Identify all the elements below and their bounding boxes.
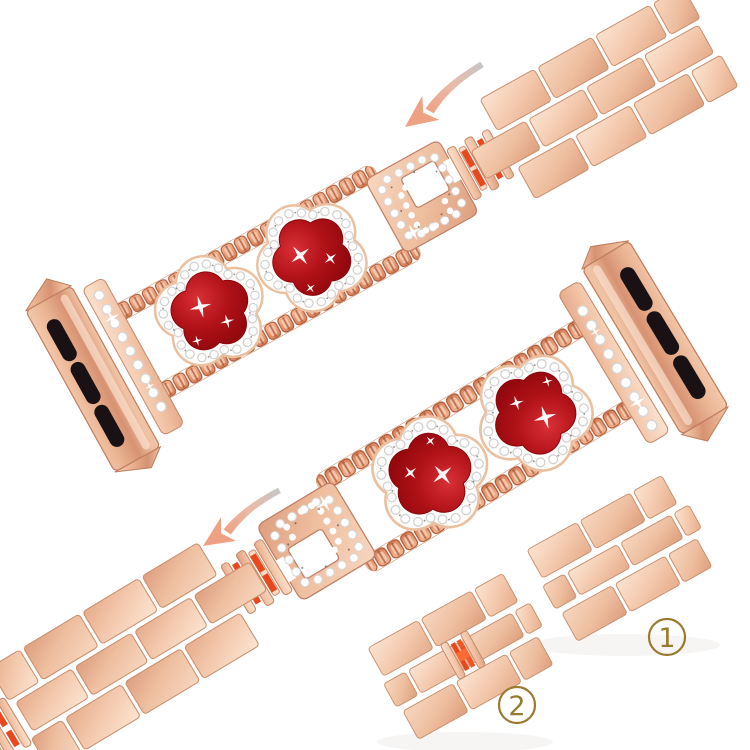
shadow — [377, 732, 553, 750]
watch-band-illustration: 1 2 — [0, 0, 750, 750]
disassemble-arrow-top — [396, 59, 495, 137]
part-label-number: 2 — [508, 691, 525, 722]
part-label-2: 2 — [499, 687, 535, 723]
link-segment-1 — [524, 471, 721, 643]
part-label-number: 1 — [658, 623, 675, 654]
shadow — [530, 634, 720, 656]
product-photo: 1 2 — [0, 0, 750, 750]
